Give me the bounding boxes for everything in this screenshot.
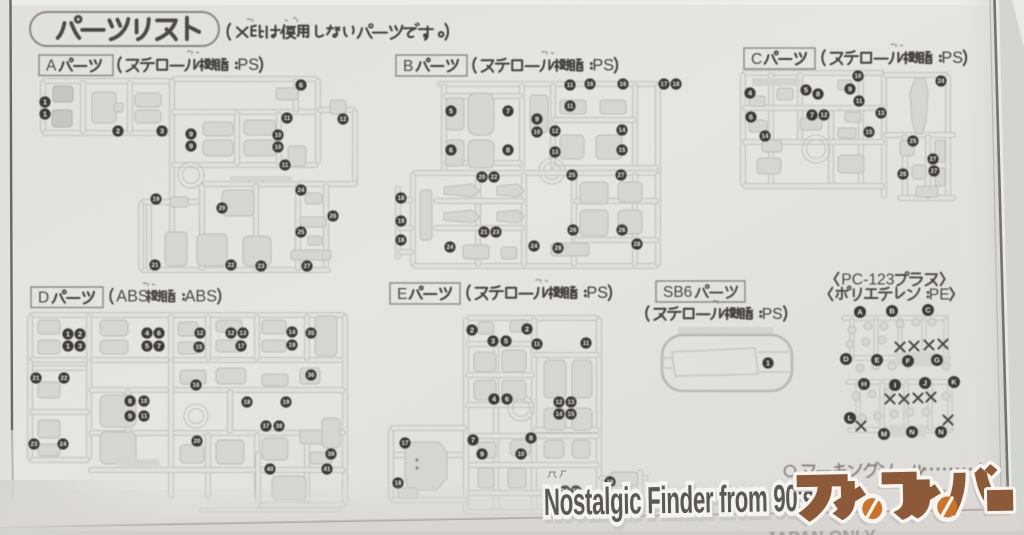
svg-text:Nostalgic Finder from 90's: Nostalgic Finder from 90's [544, 477, 815, 524]
